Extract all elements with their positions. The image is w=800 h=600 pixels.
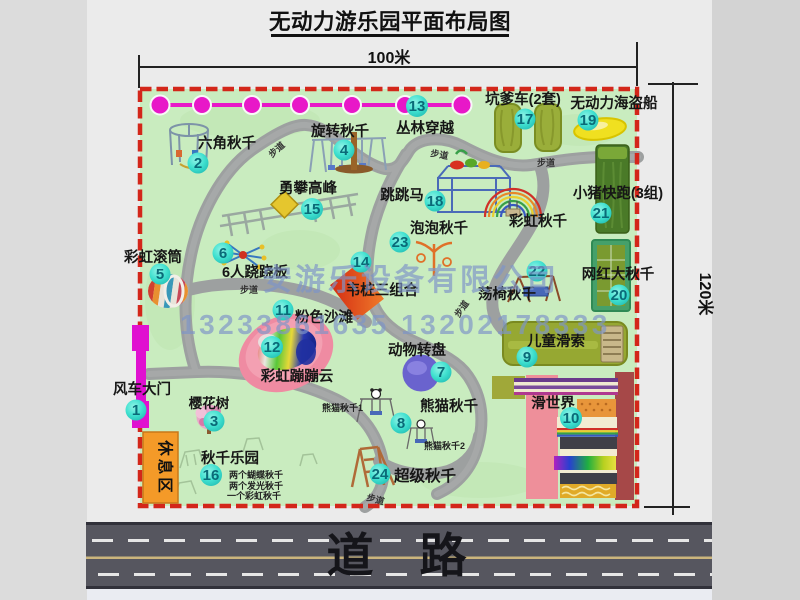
svg-text:13: 13 [409, 98, 426, 115]
svg-text:彩虹蹦蹦云: 彩虹蹦蹦云 [260, 367, 334, 385]
svg-text:彩虹秋千: 彩虹秋千 [508, 212, 567, 230]
svg-text:两个发光秋千: 两个发光秋千 [229, 480, 283, 491]
svg-text:旋转秋千: 旋转秋千 [310, 122, 369, 140]
svg-text:一个彩虹秋千: 一个彩虹秋千 [227, 490, 281, 501]
svg-text:小猪快跑(3组): 小猪快跑(3组) [573, 184, 663, 202]
svg-text:道: 道 [327, 529, 374, 582]
svg-text:勇攀高峰: 勇攀高峰 [279, 179, 337, 197]
svg-text:2: 2 [194, 155, 202, 172]
svg-text:17: 17 [517, 111, 534, 128]
svg-text:20: 20 [611, 287, 628, 304]
svg-text:跳跳马: 跳跳马 [380, 186, 424, 204]
svg-text:23: 23 [392, 234, 409, 251]
svg-text:休息区: 休息区 [156, 439, 175, 496]
svg-text:步道: 步道 [537, 157, 555, 168]
svg-text:丛林穿越: 丛林穿越 [396, 119, 454, 137]
svg-text:熊猫秋千2: 熊猫秋千2 [424, 440, 465, 451]
svg-text:1: 1 [132, 402, 140, 419]
svg-text:10: 10 [563, 410, 580, 427]
svg-text:8: 8 [397, 415, 405, 432]
svg-text:无动力海盗船: 无动力海盗船 [571, 94, 658, 112]
svg-text:熊猫秋千1: 熊猫秋千1 [322, 402, 363, 413]
svg-text:3: 3 [210, 413, 218, 430]
svg-text:泡泡秋千: 泡泡秋千 [410, 219, 468, 237]
svg-text:超级秋千: 超级秋千 [393, 466, 457, 485]
svg-text:无动力游乐园平面布局图: 无动力游乐园平面布局图 [269, 9, 511, 34]
svg-text:樱花树: 樱花树 [189, 395, 230, 411]
svg-text:5: 5 [156, 266, 164, 283]
svg-text:15: 15 [304, 201, 321, 218]
svg-text:网红大秋千: 网红大秋千 [582, 265, 655, 283]
svg-text:18: 18 [427, 193, 444, 210]
svg-text:9: 9 [523, 349, 531, 366]
svg-text:六角秋千: 六角秋千 [198, 134, 256, 152]
svg-text:6: 6 [219, 245, 227, 262]
svg-text:路: 路 [420, 529, 468, 582]
svg-text:24: 24 [372, 466, 389, 483]
svg-text:风车大门: 风车大门 [113, 380, 171, 398]
svg-text:坑爹车(2套): 坑爹车(2套) [485, 90, 561, 108]
svg-text:16: 16 [203, 467, 220, 484]
svg-text:安游乐设备有限公司: 安游乐设备有限公司 [262, 263, 559, 297]
svg-text:两个蝴蝶秋千: 两个蝴蝶秋千 [229, 469, 283, 480]
svg-text:12: 12 [264, 339, 281, 356]
svg-text:彩虹滚筒: 彩虹滚筒 [123, 248, 182, 266]
svg-text:步道: 步道 [240, 284, 258, 295]
svg-text:7: 7 [437, 364, 445, 381]
svg-text:动物转盘: 动物转盘 [388, 341, 446, 359]
svg-text:13233861635 13202178333: 13233861635 13202178333 [180, 309, 611, 340]
svg-text:100米: 100米 [368, 48, 412, 67]
svg-text:19: 19 [580, 112, 597, 129]
svg-text:熊猫秋千: 熊猫秋千 [420, 397, 478, 415]
svg-text:21: 21 [593, 205, 610, 222]
svg-text:4: 4 [340, 142, 349, 159]
svg-text:120米: 120米 [696, 273, 715, 317]
